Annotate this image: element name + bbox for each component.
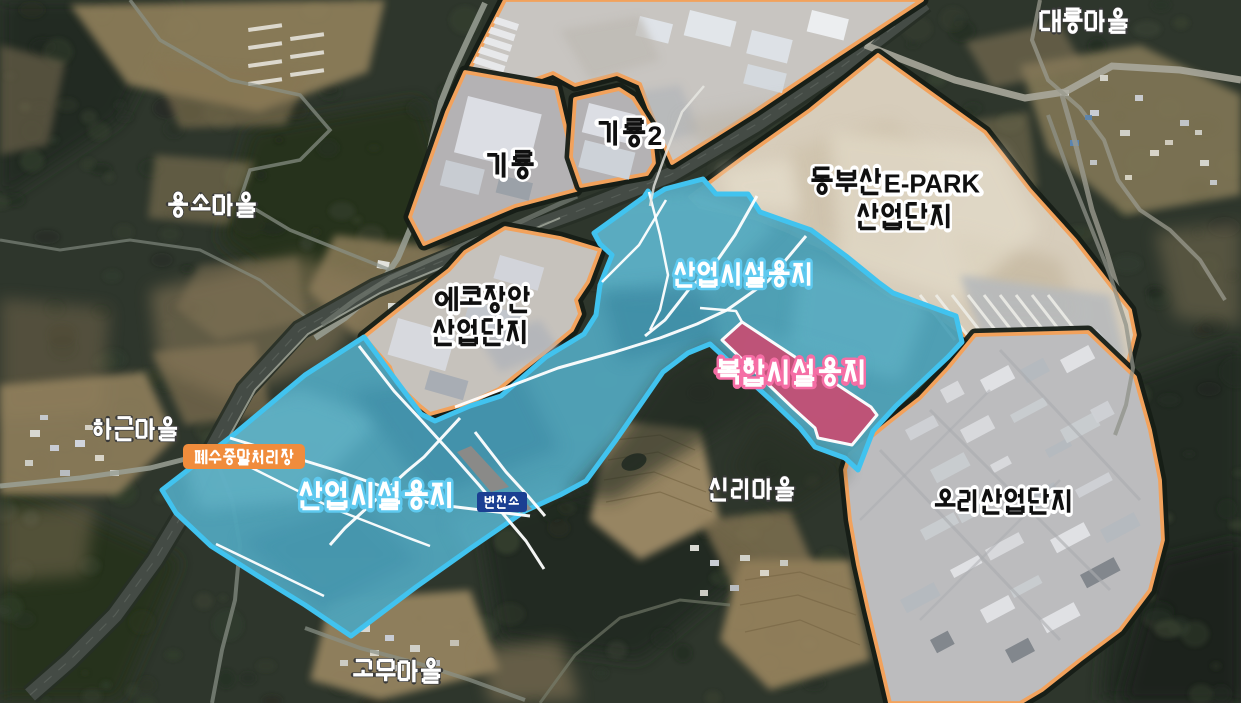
svg-text:2: 2	[648, 121, 663, 151]
svg-text:E-PARK: E-PARK	[884, 170, 981, 198]
